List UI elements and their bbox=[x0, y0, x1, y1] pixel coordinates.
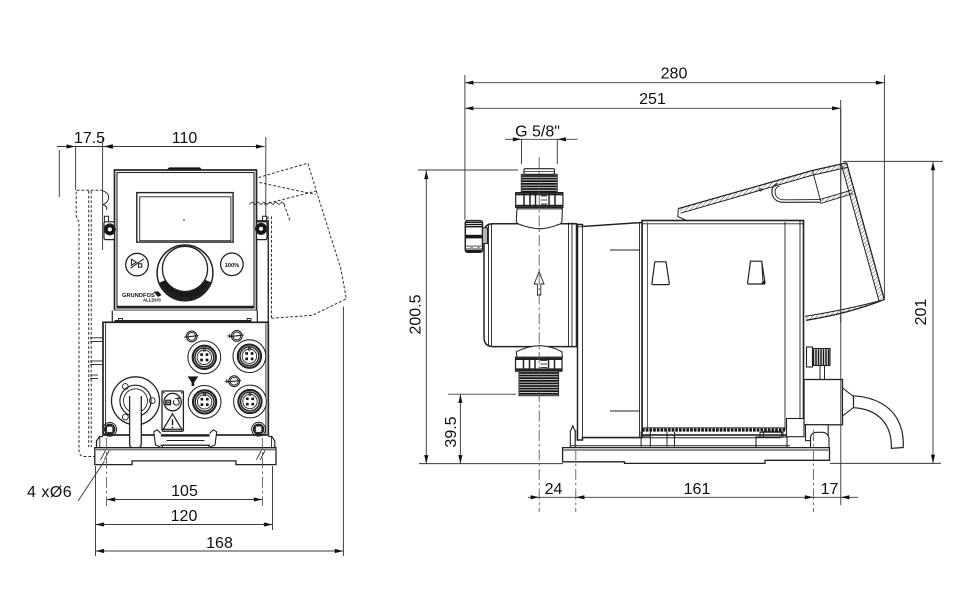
svg-text:120: 120 bbox=[171, 508, 198, 525]
svg-text:17: 17 bbox=[821, 481, 839, 498]
svg-text:100%: 100% bbox=[225, 263, 240, 269]
svg-text:24: 24 bbox=[545, 481, 563, 498]
svg-text:105: 105 bbox=[171, 483, 198, 500]
svg-text:ALLDOS: ALLDOS bbox=[143, 298, 161, 303]
svg-text:4 xØ6: 4 xØ6 bbox=[27, 484, 72, 501]
svg-text:168: 168 bbox=[206, 535, 233, 552]
svg-text:201: 201 bbox=[913, 299, 930, 326]
svg-text:110: 110 bbox=[172, 130, 198, 147]
svg-text:17.5: 17.5 bbox=[74, 130, 105, 147]
svg-text:39.5: 39.5 bbox=[443, 416, 460, 447]
svg-text:161: 161 bbox=[684, 481, 711, 498]
svg-text:251: 251 bbox=[639, 91, 666, 108]
svg-text:280: 280 bbox=[661, 66, 688, 83]
svg-text:200.5: 200.5 bbox=[408, 294, 425, 334]
svg-text:G 5/8": G 5/8" bbox=[515, 124, 560, 141]
